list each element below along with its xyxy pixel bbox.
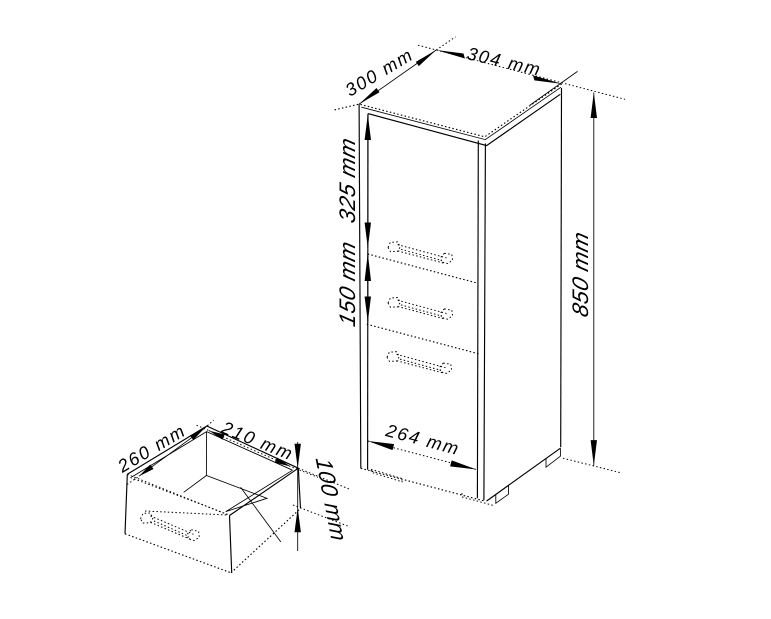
svg-text:150 mm: 150 mm xyxy=(334,238,360,329)
svg-text:850 mm: 850 mm xyxy=(567,229,593,320)
svg-text:325 mm: 325 mm xyxy=(334,135,360,226)
